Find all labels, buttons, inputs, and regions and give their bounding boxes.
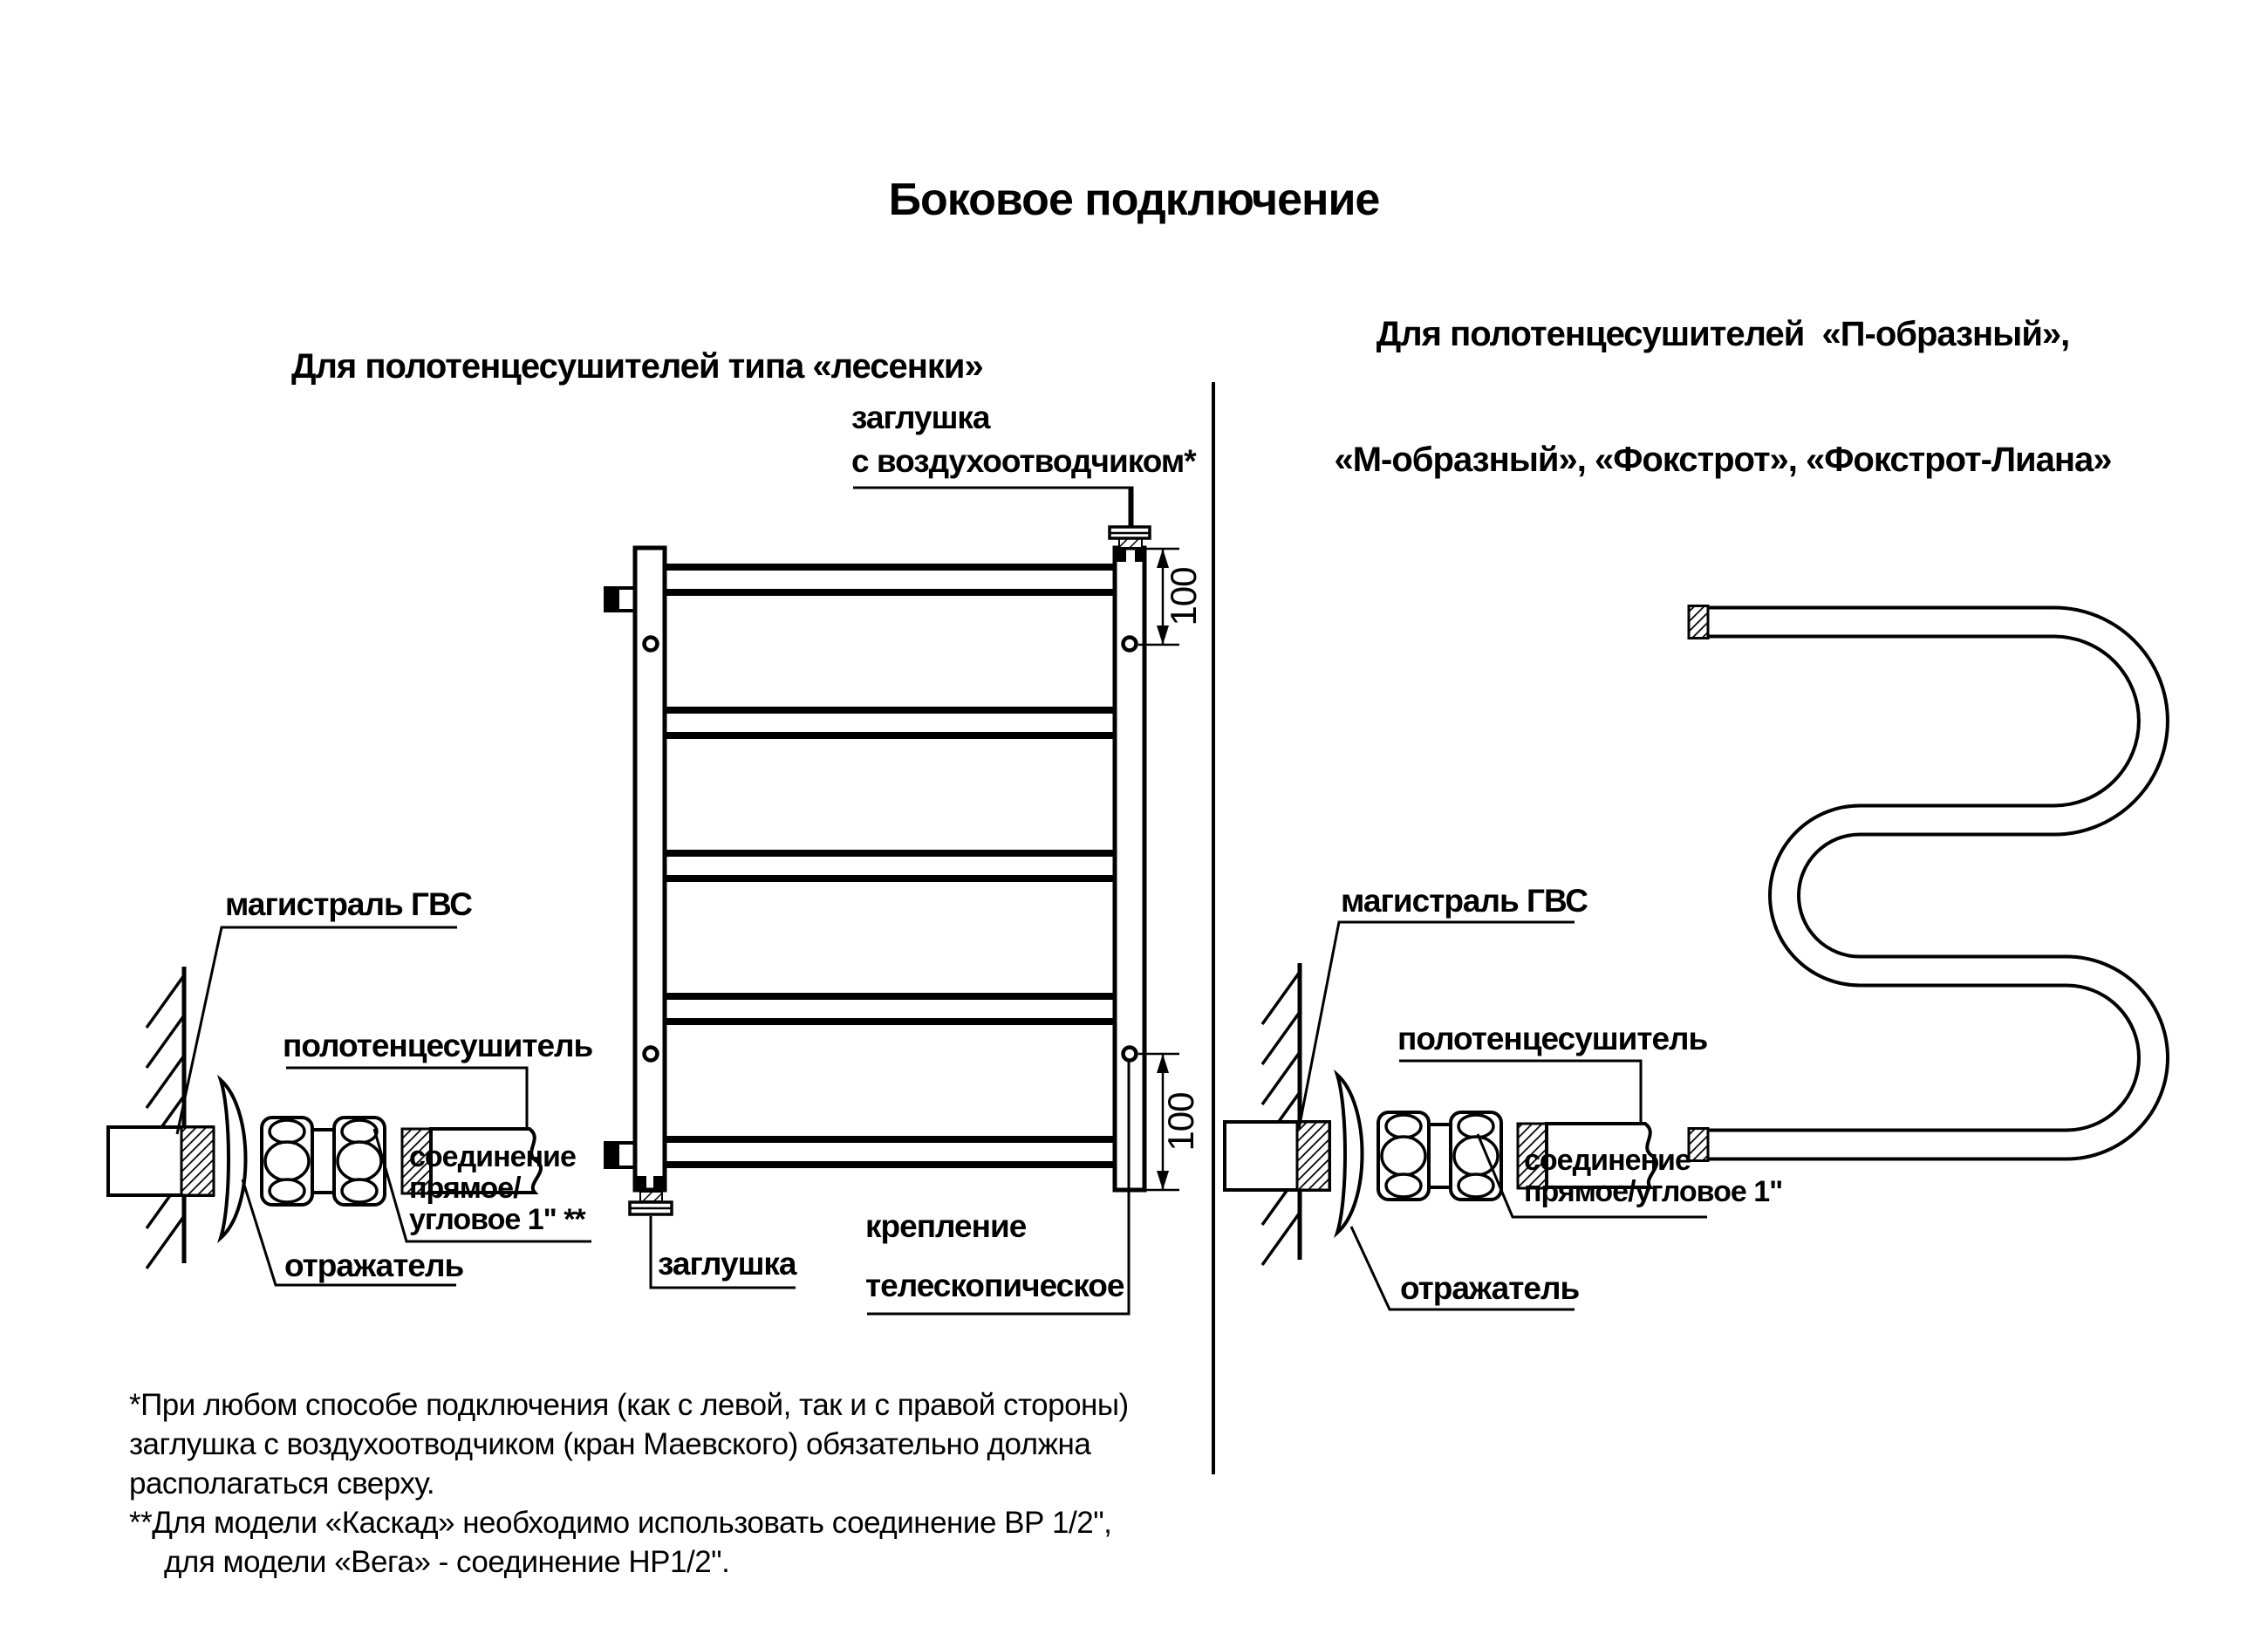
label-union-right-line2: прямое/угловое 1" bbox=[1524, 1177, 1782, 1208]
coil-end-thread-top bbox=[1689, 606, 1708, 639]
coil-outer bbox=[1689, 622, 2154, 1145]
label-union-right-line1: соединение bbox=[1524, 1145, 1691, 1177]
label-plug: заглушка bbox=[658, 1248, 796, 1282]
label-towel-rail-left: полотенцесушитель bbox=[283, 1029, 592, 1063]
footnote-line1: *При любом способе подключения (как с ле… bbox=[129, 1385, 1129, 1425]
m-shaped-towel-rail bbox=[1689, 606, 2154, 1161]
ladder-tubes bbox=[654, 567, 1125, 1165]
label-union-left-line2: прямое/ bbox=[409, 1173, 521, 1205]
footnote-line2: заглушка с воздухоотводчиком (кран Маевс… bbox=[129, 1425, 1090, 1464]
ladder-towel-rail bbox=[605, 488, 1179, 1314]
coil-end-thread-bottom bbox=[1689, 1129, 1708, 1161]
footnote-line3: располагаться сверху. bbox=[129, 1464, 434, 1503]
air-vent-cap bbox=[1110, 527, 1150, 548]
label-union-left-line3: угловое 1" ** bbox=[409, 1205, 585, 1236]
label-supply-right: магистраль ГВС bbox=[1341, 885, 1588, 919]
right-connection-assembly bbox=[1225, 922, 1707, 1309]
ladder-leader-lines bbox=[651, 488, 1132, 1314]
plug-cap bbox=[630, 1192, 672, 1214]
right-leader-lines bbox=[1299, 922, 1707, 1309]
reflector-left bbox=[221, 1080, 246, 1238]
label-reflector-left: отражатель bbox=[284, 1249, 463, 1283]
side-connection-stub-top bbox=[605, 588, 637, 611]
dimension-value-bottom: 100 bbox=[1142, 1091, 1220, 1152]
union-fitting-right bbox=[1378, 1112, 1501, 1200]
drawing-sheet: Боковое подключение Для полотенцесушител… bbox=[0, 0, 2268, 1634]
heading-ladder-section: Для полотенцесушителей типа «лесенки» bbox=[291, 348, 983, 385]
dimension-value-top: 100 bbox=[1144, 566, 1223, 627]
label-mount-line2: телескопическое bbox=[865, 1269, 1124, 1303]
wall-left bbox=[147, 967, 184, 1268]
heading-right-section-line1: Для полотенцесушителей «П-образный», bbox=[1221, 316, 2224, 352]
label-mount-line1: крепление bbox=[865, 1210, 1026, 1244]
reflector-right bbox=[1337, 1075, 1363, 1233]
footnote-line4: **Для модели «Каскад» необходимо использ… bbox=[129, 1503, 1111, 1542]
supply-pipe-right bbox=[1225, 1122, 1329, 1190]
label-towel-rail-right: полотенцесушитель bbox=[1397, 1022, 1707, 1056]
label-air-vent-line2: с воздухоотводчиком* bbox=[851, 445, 1196, 479]
page-title: Боковое подключение bbox=[0, 176, 2268, 224]
label-reflector-right: отражатель bbox=[1400, 1272, 1579, 1306]
footnote-line5: для модели «Вега» - соединение НР1/2". bbox=[164, 1542, 729, 1582]
label-union-left-line1: соединение bbox=[409, 1142, 576, 1173]
supply-pipe-left bbox=[108, 1127, 214, 1195]
wall-right bbox=[1262, 963, 1300, 1265]
label-air-vent-line1: заглушка bbox=[851, 401, 990, 435]
label-supply-left: магистраль ГВС bbox=[225, 888, 472, 922]
coil-inner bbox=[1689, 622, 2154, 1145]
union-fitting-left bbox=[262, 1118, 385, 1205]
side-connection-stub-bottom bbox=[605, 1143, 637, 1167]
heading-right-section-line2: «М-образный», «Фокстрот», «Фокстрот-Лиан… bbox=[1221, 441, 2224, 478]
